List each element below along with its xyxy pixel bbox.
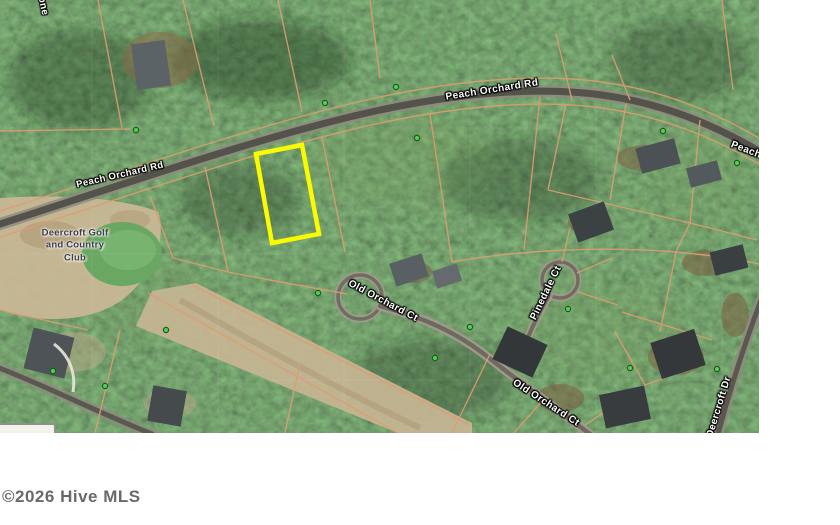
tree-marker: [414, 135, 419, 140]
golf-club-label-line1: Deercroft Golf: [42, 227, 109, 239]
tree-marker: [467, 324, 472, 329]
golf-club-label-line3: Club: [42, 252, 109, 264]
map-canvas: [0, 0, 759, 433]
golf-club-label-line2: and Country: [42, 240, 109, 252]
house: [131, 40, 171, 90]
tree-marker: [163, 327, 168, 332]
tree-marker: [432, 355, 437, 360]
golf-club-label: Deercroft Golf and Country Club: [42, 227, 109, 264]
tree-marker: [102, 383, 107, 388]
map-scale-bar: [0, 423, 56, 433]
screenshot-root: one Peach Orchard Rd Peach Orchard Rd Pe…: [0, 0, 840, 525]
mls-watermark: ©2026 Hive MLS: [2, 487, 141, 507]
tree-marker: [315, 290, 320, 295]
tree-marker: [734, 160, 739, 165]
tree-marker: [393, 84, 398, 89]
tree-marker: [565, 306, 570, 311]
tree-marker: [627, 365, 632, 370]
tree-marker: [714, 366, 719, 371]
house: [147, 385, 187, 426]
tree-marker: [322, 100, 327, 105]
tree-marker: [133, 127, 138, 132]
tree-marker: [660, 128, 665, 133]
tree-marker: [50, 368, 55, 373]
map-viewport[interactable]: one Peach Orchard Rd Peach Orchard Rd Pe…: [0, 0, 759, 433]
